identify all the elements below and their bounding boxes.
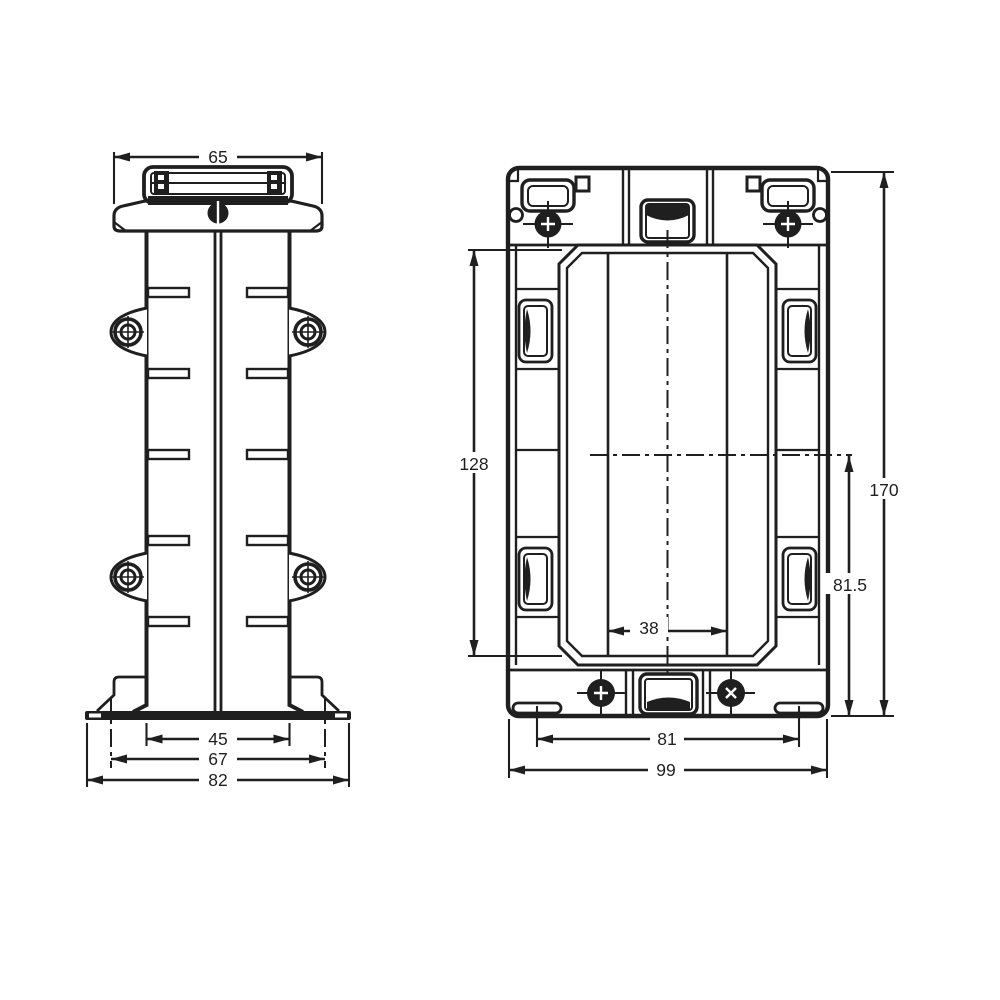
dim-label-38: 38 [639,618,658,638]
arrowhead [783,735,799,744]
dim-label-81: 81 [657,729,676,749]
boss [111,553,147,601]
arrowhead [274,735,290,744]
foot-bracket-right [290,677,339,711]
rib [148,617,189,626]
dim-label-65: 65 [208,147,227,167]
side-slot [783,548,816,610]
rib [247,369,288,378]
boss [289,553,325,601]
side-slot [783,300,816,362]
boss [289,308,325,356]
arrowhead [309,755,325,764]
case-body [111,231,325,712]
vent-slot [158,184,164,189]
dim-label-82: 82 [208,770,227,790]
arrowhead [537,735,553,744]
vent-slot [158,175,164,180]
mount-square [576,177,589,191]
boss [111,308,147,356]
technical-drawing: 65 [0,0,1000,1000]
rib [247,536,288,545]
rib [247,450,288,459]
foot-slot-right [335,714,347,718]
body-walls [133,231,303,712]
side-view: 65 [85,146,351,790]
arrowhead [87,776,103,785]
drawing-canvas: 65 [0,0,1000,1000]
arrowhead [845,456,854,472]
arrowhead [147,735,163,744]
arrowhead [880,172,889,188]
arrowhead [811,766,827,775]
dim-label-99: 99 [656,760,675,780]
side-bosses [111,308,325,601]
arrowhead [470,640,479,656]
arrowhead [470,250,479,266]
dimension-45: 45 [147,723,290,749]
rib [247,617,288,626]
arrowhead [845,700,854,716]
cover-vent-left [154,171,169,195]
dim-label-170: 170 [869,480,898,500]
vent-slot [271,175,277,180]
dim-label-67: 67 [208,749,227,769]
arrowhead [509,766,525,775]
base-plate [85,711,351,720]
arrowhead [114,153,130,162]
front-view: 128 170 81.5 38 [451,168,908,780]
dim-label-81-5: 81.5 [833,575,867,595]
rib [148,369,189,378]
dim-label-128: 128 [459,454,488,474]
case-seam [215,231,221,712]
foot-slot-left [89,714,101,718]
dimension-67: 67 [111,748,325,769]
edge-ear [814,209,827,222]
arrowhead [333,776,349,785]
side-slot [519,548,552,610]
rib [148,450,189,459]
rib [148,288,189,297]
rib [247,288,288,297]
vent-slot [271,184,277,189]
arrowhead [111,755,127,764]
cooling-ribs [148,288,288,626]
dim-label-45: 45 [208,729,227,749]
edge-ear [510,209,523,222]
arrowhead [880,700,889,716]
foot-bracket-left [97,677,146,711]
mount-square [747,177,760,191]
cover-vent-right [267,171,282,195]
side-slot [519,300,552,362]
bottom-center-slot [640,674,697,714]
rib [148,536,189,545]
arrowhead [306,153,322,162]
dimension-170: 170 [831,172,908,716]
